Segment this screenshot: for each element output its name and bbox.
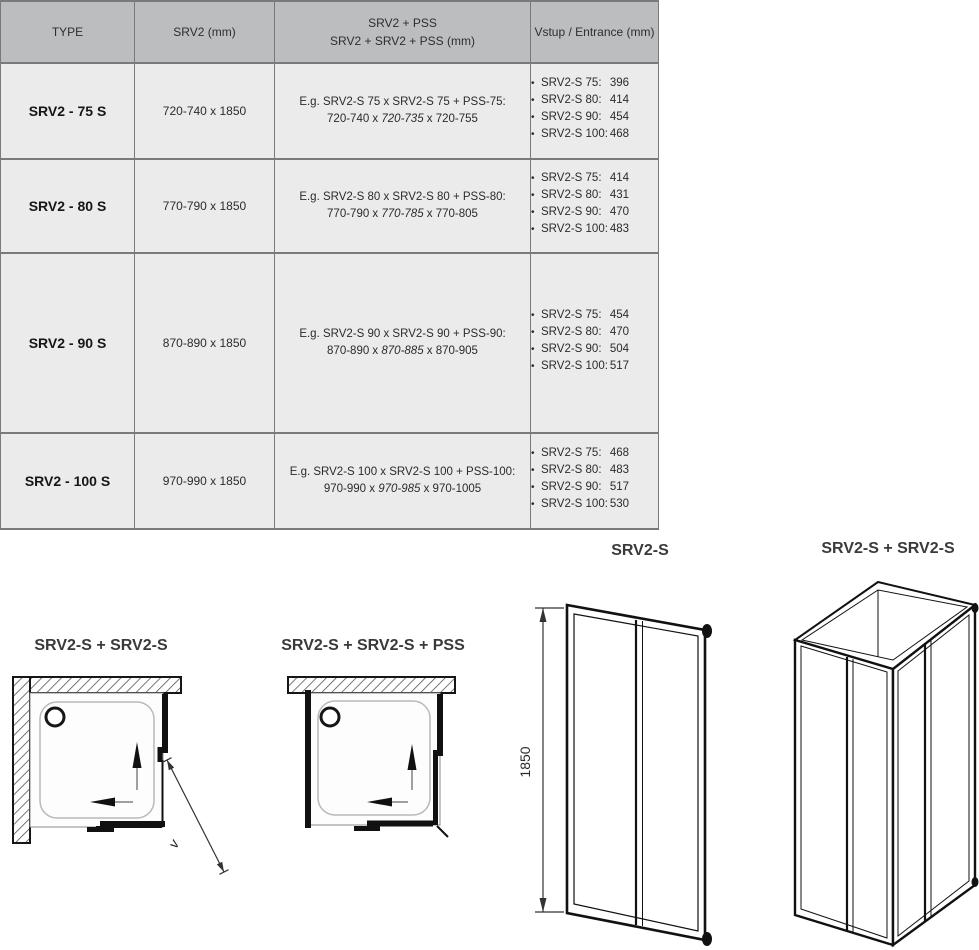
bullet-icon: • xyxy=(531,207,541,218)
diagram-title: SRV2-S + SRV2-S xyxy=(821,540,955,557)
dim-arrow-icon xyxy=(540,608,547,622)
bullet-icon: • xyxy=(531,499,541,510)
height-dimension-label: 1850 xyxy=(517,746,533,777)
example-line2: 720-740 x 720-735 x 720-755 xyxy=(275,111,530,128)
bullet-icon: • xyxy=(531,344,541,355)
example-middle: 870-885 xyxy=(381,345,423,357)
example-suffix: x 870-905 xyxy=(424,345,478,357)
entrance-item: •SRV2-S 90:454 xyxy=(531,111,658,128)
bullet-icon: • xyxy=(531,95,541,106)
diagram-title: SRV2-S xyxy=(611,542,669,559)
entrance-value: 517 xyxy=(605,360,629,372)
entrance-label: SRV2-S 80: xyxy=(541,464,605,476)
example-suffix: x 720-755 xyxy=(424,113,478,125)
table-row: SRV2 - 75 S 720-740 x 1850 E.g. SRV2-S 7… xyxy=(1,63,659,159)
table-row: SRV2 - 80 S 770-790 x 1850 E.g. SRV2-S 8… xyxy=(1,159,659,253)
shower-tray xyxy=(30,693,163,827)
example-line1: E.g. SRV2-S 80 x SRV2-S 80 + PSS-80: xyxy=(275,189,530,206)
door-elevation-diagram: SRV2-S 1850 xyxy=(505,530,745,950)
entrance-label: SRV2-S 75: xyxy=(541,172,605,184)
plan-diagram-corner: SRV2-S + SRV2-S v xyxy=(0,620,250,950)
example-line1: E.g. SRV2-S 100 x SRV2-S 100 + PSS-100: xyxy=(275,464,530,481)
bullet-icon: • xyxy=(531,129,541,140)
entrance-label: SRV2-S 75: xyxy=(541,77,605,89)
cell-entrance: •SRV2-S 75:468 •SRV2-S 80:483 •SRV2-S 90… xyxy=(531,433,659,529)
example-middle: 770-785 xyxy=(381,208,423,220)
entry-dimension xyxy=(163,758,229,875)
entrance-item: •SRV2-S 75:454 xyxy=(531,309,658,326)
bullet-icon: • xyxy=(531,361,541,372)
entrance-item: •SRV2-S 100:483 xyxy=(531,223,658,240)
bullet-icon: • xyxy=(531,482,541,493)
bullet-icon: • xyxy=(531,78,541,89)
example-line1: E.g. SRV2-S 90 x SRV2-S 90 + PSS-90: xyxy=(275,326,530,343)
cell-entrance: •SRV2-S 75:396 •SRV2-S 80:414 •SRV2-S 90… xyxy=(531,63,659,159)
entrance-label: SRV2-S 90: xyxy=(541,111,605,123)
diagram-title: SRV2-S + SRV2-S + PSS xyxy=(281,637,465,654)
dim-arrow-icon xyxy=(540,898,547,912)
entrance-item: •SRV2-S 100:517 xyxy=(531,360,658,377)
bullet-icon: • xyxy=(531,448,541,459)
entrance-value: 468 xyxy=(605,128,629,140)
example-prefix: 770-790 x xyxy=(327,208,381,220)
entrance-value: 517 xyxy=(605,481,629,493)
bullet-icon: • xyxy=(531,327,541,338)
cell-type: SRV2 - 100 S xyxy=(1,433,135,529)
entrance-label: SRV2-S 75: xyxy=(541,447,605,459)
cell-size: 870-890 x 1850 xyxy=(135,253,275,433)
example-prefix: 970-990 x xyxy=(324,483,378,495)
entrance-label: SRV2-S 100: xyxy=(541,360,605,372)
table-row: SRV2 - 100 S 970-990 x 1850 E.g. SRV2-S … xyxy=(1,433,659,529)
rail-cap-icon xyxy=(702,932,712,946)
entrance-item: •SRV2-S 100:530 xyxy=(531,498,658,515)
example-line1: E.g. SRV2-S 75 x SRV2-S 75 + PSS-75: xyxy=(275,94,530,111)
table-header-row: TYPE SRV2 (mm) SRV2 + PSS SRV2 + SRV2 + … xyxy=(1,1,659,63)
entrance-value: 454 xyxy=(605,111,629,123)
entrance-label: SRV2-S 80: xyxy=(541,326,605,338)
drain-icon xyxy=(321,708,339,726)
example-middle: 720-735 xyxy=(381,113,423,125)
cell-size: 720-740 x 1850 xyxy=(135,63,275,159)
example-middle: 970-985 xyxy=(378,483,420,495)
cell-type: SRV2 - 75 S xyxy=(1,63,135,159)
bullet-icon: • xyxy=(531,224,541,235)
example-line2: 970-990 x 970-985 x 970-1005 xyxy=(275,481,530,498)
entrance-label: SRV2-S 90: xyxy=(541,343,605,355)
entrance-item: •SRV2-S 75:396 xyxy=(531,77,658,94)
cell-entrance: •SRV2-S 75:414 •SRV2-S 80:431 •SRV2-S 90… xyxy=(531,159,659,253)
spec-sheet-page: { "icons": { "bullet": "•" }, "colors": … xyxy=(0,0,979,950)
rail-cap-icon xyxy=(702,624,712,638)
cell-size: 970-990 x 1850 xyxy=(135,433,275,529)
sliding-door-frame xyxy=(567,605,712,946)
dim-arrow-icon xyxy=(167,760,174,770)
entrance-value: 468 xyxy=(605,447,629,459)
entrance-value: 483 xyxy=(605,223,629,235)
entrance-value: 414 xyxy=(605,172,629,184)
table-row: SRV2 - 90 S 870-890 x 1850 E.g. SRV2-S 9… xyxy=(1,253,659,433)
rail-cap-icon xyxy=(972,877,979,887)
entrance-item: •SRV2-S 90:504 xyxy=(531,343,658,360)
entrance-label: SRV2-S 90: xyxy=(541,206,605,218)
cell-entrance: •SRV2-S 75:454 •SRV2-S 80:470 •SRV2-S 90… xyxy=(531,253,659,433)
drain-icon xyxy=(46,708,64,726)
bullet-icon: • xyxy=(531,190,541,201)
entrance-value: 470 xyxy=(605,206,629,218)
entrance-value: 414 xyxy=(605,94,629,106)
header-combo: SRV2 + PSS SRV2 + SRV2 + PSS (mm) xyxy=(275,1,531,63)
cell-example: E.g. SRV2-S 75 x SRV2-S 75 + PSS-75: 720… xyxy=(275,63,531,159)
shower-tray xyxy=(310,693,440,825)
entrance-value: 396 xyxy=(605,77,629,89)
header-srv2: SRV2 (mm) xyxy=(135,1,275,63)
entrance-item: •SRV2-S 80:431 xyxy=(531,189,658,206)
bullet-icon: • xyxy=(531,310,541,321)
rail-cap-icon xyxy=(972,603,979,613)
entrance-item: •SRV2-S 90:517 xyxy=(531,481,658,498)
header-combo-line1: SRV2 + PSS xyxy=(275,14,530,32)
entrance-item: •SRV2-S 100:468 xyxy=(531,128,658,145)
header-entrance: Vstup / Entrance (mm) xyxy=(531,1,659,63)
entrance-item: •SRV2-S 75:468 xyxy=(531,447,658,464)
cell-example: E.g. SRV2-S 80 x SRV2-S 80 + PSS-80: 770… xyxy=(275,159,531,253)
cell-type: SRV2 - 90 S xyxy=(1,253,135,433)
example-suffix: x 970-1005 xyxy=(420,483,481,495)
entrance-label: SRV2-S 80: xyxy=(541,189,605,201)
example-prefix: 720-740 x xyxy=(327,113,381,125)
spec-table: TYPE SRV2 (mm) SRV2 + PSS SRV2 + SRV2 + … xyxy=(0,0,659,530)
entrance-value: 530 xyxy=(605,498,629,510)
entrance-label: SRV2-S 100: xyxy=(541,223,605,235)
entrance-value: 483 xyxy=(605,464,629,476)
cell-type: SRV2 - 80 S xyxy=(1,159,135,253)
entrance-label: SRV2-S 100: xyxy=(541,498,605,510)
entrance-value: 470 xyxy=(605,326,629,338)
cell-size: 770-790 x 1850 xyxy=(135,159,275,253)
example-line2: 770-790 x 770-785 x 770-805 xyxy=(275,206,530,223)
dim-arrow-icon xyxy=(217,862,224,872)
entrance-item: •SRV2-S 80:470 xyxy=(531,326,658,343)
entrance-value: 504 xyxy=(605,343,629,355)
entrance-value: 454 xyxy=(605,309,629,321)
bullet-icon: • xyxy=(531,173,541,184)
plan-diagram-wall-pss: SRV2-S + SRV2-S + PSS xyxy=(255,620,505,950)
bullet-icon: • xyxy=(531,112,541,123)
example-prefix: 870-890 x xyxy=(327,345,381,357)
cell-example: E.g. SRV2-S 100 x SRV2-S 100 + PSS-100: … xyxy=(275,433,531,529)
entrance-label: SRV2-S 80: xyxy=(541,94,605,106)
entrance-item: •SRV2-S 90:470 xyxy=(531,206,658,223)
corner-3d-diagram: SRV2-S + SRV2-S xyxy=(745,530,979,950)
entrance-value: 431 xyxy=(605,189,629,201)
diagram-title: SRV2-S + SRV2-S xyxy=(34,637,168,654)
entrance-item: •SRV2-S 75:414 xyxy=(531,172,658,189)
entrance-label: SRV2-S 90: xyxy=(541,481,605,493)
entrance-label: SRV2-S 75: xyxy=(541,309,605,321)
enclosure-3d xyxy=(795,582,979,945)
cell-example: E.g. SRV2-S 90 x SRV2-S 90 + PSS-90: 870… xyxy=(275,253,531,433)
example-line2: 870-890 x 870-885 x 870-905 xyxy=(275,343,530,360)
height-dimension xyxy=(535,608,564,912)
wall-hatched xyxy=(288,677,455,693)
example-suffix: x 770-805 xyxy=(424,208,478,220)
bullet-icon: • xyxy=(531,465,541,476)
entry-dimension-label: v xyxy=(165,836,183,850)
entrance-item: •SRV2-S 80:483 xyxy=(531,464,658,481)
entrance-label: SRV2-S 100: xyxy=(541,128,605,140)
entrance-item: •SRV2-S 80:414 xyxy=(531,94,658,111)
header-type: TYPE xyxy=(1,1,135,63)
header-combo-line2: SRV2 + SRV2 + PSS (mm) xyxy=(275,32,530,50)
